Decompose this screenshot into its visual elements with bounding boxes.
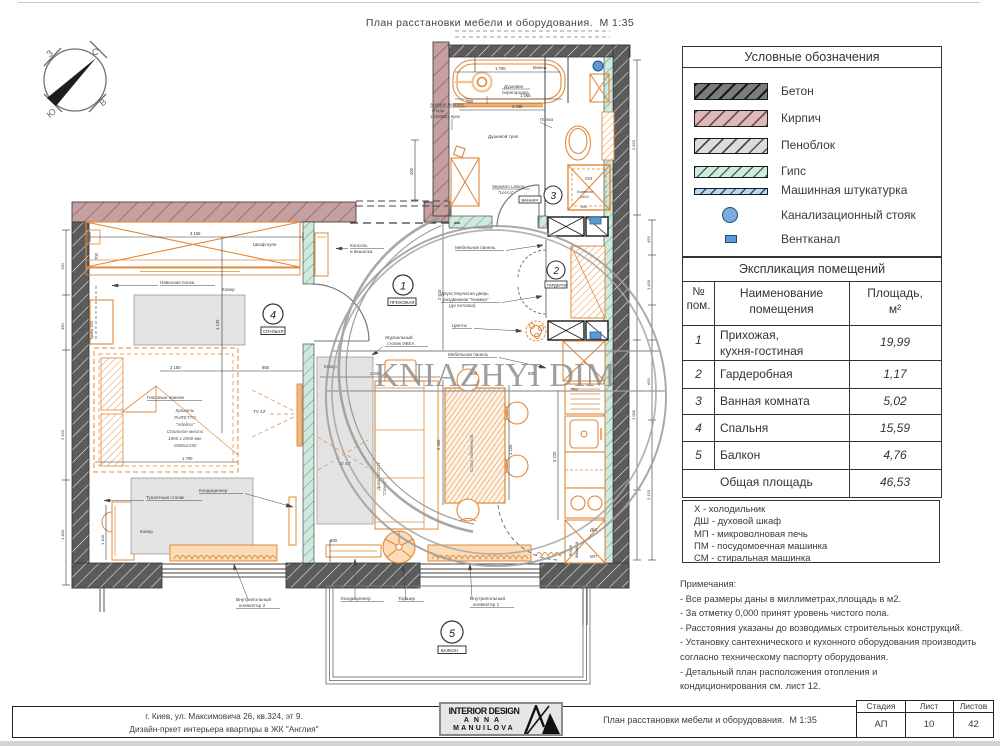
svg-text:600: 600 xyxy=(646,378,651,385)
svg-text:Кондиционер: Кондиционер xyxy=(199,488,228,493)
svg-text:В: В xyxy=(97,97,108,109)
svg-text:2 620: 2 620 xyxy=(631,139,636,150)
svg-text:и вешалка: и вешалка xyxy=(350,249,373,254)
svg-text:3: 3 xyxy=(551,191,557,202)
svg-text:KNIAZHYI DIM: KNIAZHYI DIM xyxy=(375,357,616,394)
svg-text:Ковер: Ковер xyxy=(222,287,235,292)
svg-text:1 700: 1 700 xyxy=(182,456,193,461)
svg-text:Цветок: Цветок xyxy=(452,323,468,328)
svg-text:1900х2150: 1900х2150 xyxy=(174,443,197,448)
svg-text:1 265: 1 265 xyxy=(520,93,531,98)
svg-text:Гипсовые панели: Гипсовые панели xyxy=(147,395,184,400)
svg-text:1 105: 1 105 xyxy=(508,444,513,455)
svg-text:1 700: 1 700 xyxy=(495,66,506,71)
svg-text:PURETTO: PURETTO xyxy=(174,415,196,420)
svg-text:(до потолка): (до потолка) xyxy=(449,303,476,308)
svg-text:БАЛКОН: БАЛКОН xyxy=(441,648,458,653)
svg-text:3 120: 3 120 xyxy=(646,489,651,500)
svg-text:Комплект: Комплект xyxy=(577,190,594,194)
svg-text:750: 750 xyxy=(466,99,474,104)
svg-text:ГАРДЕРОБ: ГАРДЕРОБ xyxy=(547,283,568,288)
svg-text:Спальное место: Спальное место xyxy=(167,429,204,434)
svg-text:Стол обеденный: Стол обеденный xyxy=(468,434,474,472)
svg-text:ДШ: ДШ xyxy=(590,527,597,532)
svg-text:Внутрипольный: Внутрипольный xyxy=(236,596,271,603)
svg-text:Туалетный столик: Туалетный столик xyxy=(146,494,185,500)
svg-text:140л: 140л xyxy=(580,195,589,199)
svg-text:ВАННАЯ: ВАННАЯ xyxy=(522,198,539,203)
svg-text:Консоль: Консоль xyxy=(350,243,368,248)
svg-text:Мебельная панель: Мебельная панель xyxy=(455,245,496,250)
svg-text:600: 600 xyxy=(581,205,587,209)
svg-text:350: 350 xyxy=(60,323,65,330)
svg-text:Полка: Полка xyxy=(540,117,554,122)
svg-text:"Lecco": "Lecco" xyxy=(498,190,514,195)
svg-text:С: С xyxy=(92,47,99,57)
svg-text:Ванна: Ванна xyxy=(533,65,547,70)
svg-text:700: 700 xyxy=(60,263,65,270)
svg-text:Кондиционер: Кондиционер xyxy=(341,596,371,602)
svg-text:1 430: 1 430 xyxy=(646,279,651,290)
svg-text:Навесная полка: Навесная полка xyxy=(160,280,195,285)
svg-text:Журнальный: Журнальный xyxy=(385,334,413,340)
svg-text:Аерокол Вентеле: Аерокол Вентеле xyxy=(430,102,464,107)
svg-text:600: 600 xyxy=(330,538,338,543)
svg-text:4: 4 xyxy=(270,310,276,322)
svg-text:TV 42': TV 42' xyxy=(253,409,266,414)
svg-text:1800 х 2000 мм.: 1800 х 2000 мм. xyxy=(168,436,202,441)
svg-text:1: 1 xyxy=(400,281,406,293)
svg-text:3 155: 3 155 xyxy=(190,231,201,236)
svg-text:раздвижная "Книжка": раздвижная "Книжка" xyxy=(443,297,489,302)
svg-text:3 225: 3 225 xyxy=(552,451,557,462)
svg-text:Торшер: Торшер xyxy=(398,596,415,602)
svg-text:1 100: 1 100 xyxy=(100,534,105,545)
svg-text:МП: МП xyxy=(590,554,597,559)
svg-text:700: 700 xyxy=(94,252,99,260)
svg-text:2 150: 2 150 xyxy=(60,429,65,440)
svg-text:Ковер: Ковер xyxy=(324,364,337,369)
svg-text:5: 5 xyxy=(449,628,456,640)
svg-text:2 460: 2 460 xyxy=(436,439,441,450)
svg-text:Внутрипольный: Внутрипольный xyxy=(470,595,505,602)
svg-text:Шкаф-купе: Шкаф-купе xyxy=(253,242,277,247)
svg-text:455: 455 xyxy=(646,236,651,243)
svg-text:ПРИХОЖАЯ: ПРИХОЖАЯ xyxy=(390,300,414,305)
svg-text:Зеркало Lissoo: Зеркало Lissoo xyxy=(492,184,525,189)
svg-text:Отеда: Отеда xyxy=(432,108,445,113)
svg-text:Душевой трап: Душевой трап xyxy=(488,133,519,139)
svg-text:Кровать: Кровать xyxy=(176,408,195,413)
svg-text:1 000: 1 000 xyxy=(631,409,636,420)
svg-text:"Adelina": "Adelina" xyxy=(176,422,195,427)
svg-text:Тумба 355: Тумба 355 xyxy=(89,320,94,340)
svg-text:955: 955 xyxy=(262,365,270,370)
svg-text:конвектор 1: конвектор 1 xyxy=(473,602,500,608)
svg-text:2 035: 2 035 xyxy=(512,104,523,109)
svg-text:Душевая: Душевая xyxy=(504,84,524,89)
svg-text:2 150: 2 150 xyxy=(170,365,181,370)
svg-text:Ковер: Ковер xyxy=(140,529,153,534)
svg-text:столик ИКЕА: столик ИКЕА xyxy=(387,341,415,346)
svg-text:Двухстворчатая дверь: Двухстворчатая дверь xyxy=(441,291,489,296)
svg-text:конвектор 2: конвектор 2 xyxy=(239,603,266,609)
svg-text:104/06022 ярок: 104/06022 ярок xyxy=(430,114,460,119)
svg-text:1 125: 1 125 xyxy=(215,319,220,330)
svg-text:400: 400 xyxy=(409,167,414,175)
svg-text:1 400: 1 400 xyxy=(60,529,65,540)
svg-text:СМ: СМ xyxy=(585,176,592,181)
svg-text:СПАЛЬНЯ: СПАЛЬНЯ xyxy=(263,329,283,334)
svg-text:Ю: Ю xyxy=(45,106,58,120)
svg-text:2: 2 xyxy=(553,266,560,277)
